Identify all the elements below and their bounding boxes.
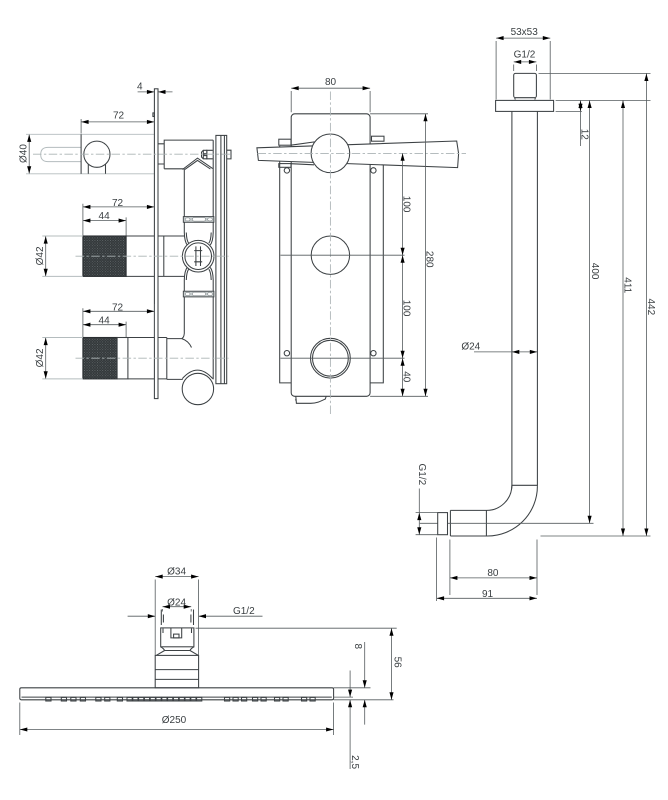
svg-text:44: 44: [99, 315, 111, 326]
svg-text:400: 400: [589, 263, 600, 280]
svg-text:4: 4: [137, 82, 143, 93]
svg-text:2,5: 2,5: [349, 755, 360, 769]
svg-text:100: 100: [400, 300, 411, 317]
svg-text:44: 44: [99, 211, 111, 222]
svg-text:100: 100: [400, 196, 411, 213]
svg-text:442: 442: [645, 299, 656, 316]
svg-text:411: 411: [622, 277, 633, 293]
svg-text:Ø42: Ø42: [35, 246, 46, 265]
svg-text:G1/2: G1/2: [416, 464, 427, 486]
svg-text:72: 72: [113, 111, 125, 122]
svg-text:91: 91: [482, 589, 494, 600]
svg-text:Ø24: Ø24: [167, 598, 186, 609]
svg-text:12: 12: [579, 129, 590, 141]
svg-text:Ø42: Ø42: [35, 348, 46, 367]
svg-text:G1/2: G1/2: [233, 606, 255, 617]
svg-text:280: 280: [424, 251, 435, 268]
svg-text:Ø40: Ø40: [19, 144, 30, 163]
svg-text:G1/2: G1/2: [514, 49, 536, 60]
svg-text:40: 40: [400, 371, 411, 383]
svg-text:Ø24: Ø24: [461, 341, 480, 352]
svg-text:Ø34: Ø34: [167, 567, 186, 578]
svg-text:Ø250: Ø250: [162, 715, 187, 726]
svg-text:80: 80: [487, 568, 499, 579]
svg-text:80: 80: [325, 77, 337, 88]
svg-text:8: 8: [352, 644, 363, 650]
svg-text:53x53: 53x53: [511, 27, 539, 38]
svg-text:72: 72: [112, 198, 124, 209]
svg-text:72: 72: [112, 302, 124, 313]
svg-text:56: 56: [391, 657, 402, 669]
